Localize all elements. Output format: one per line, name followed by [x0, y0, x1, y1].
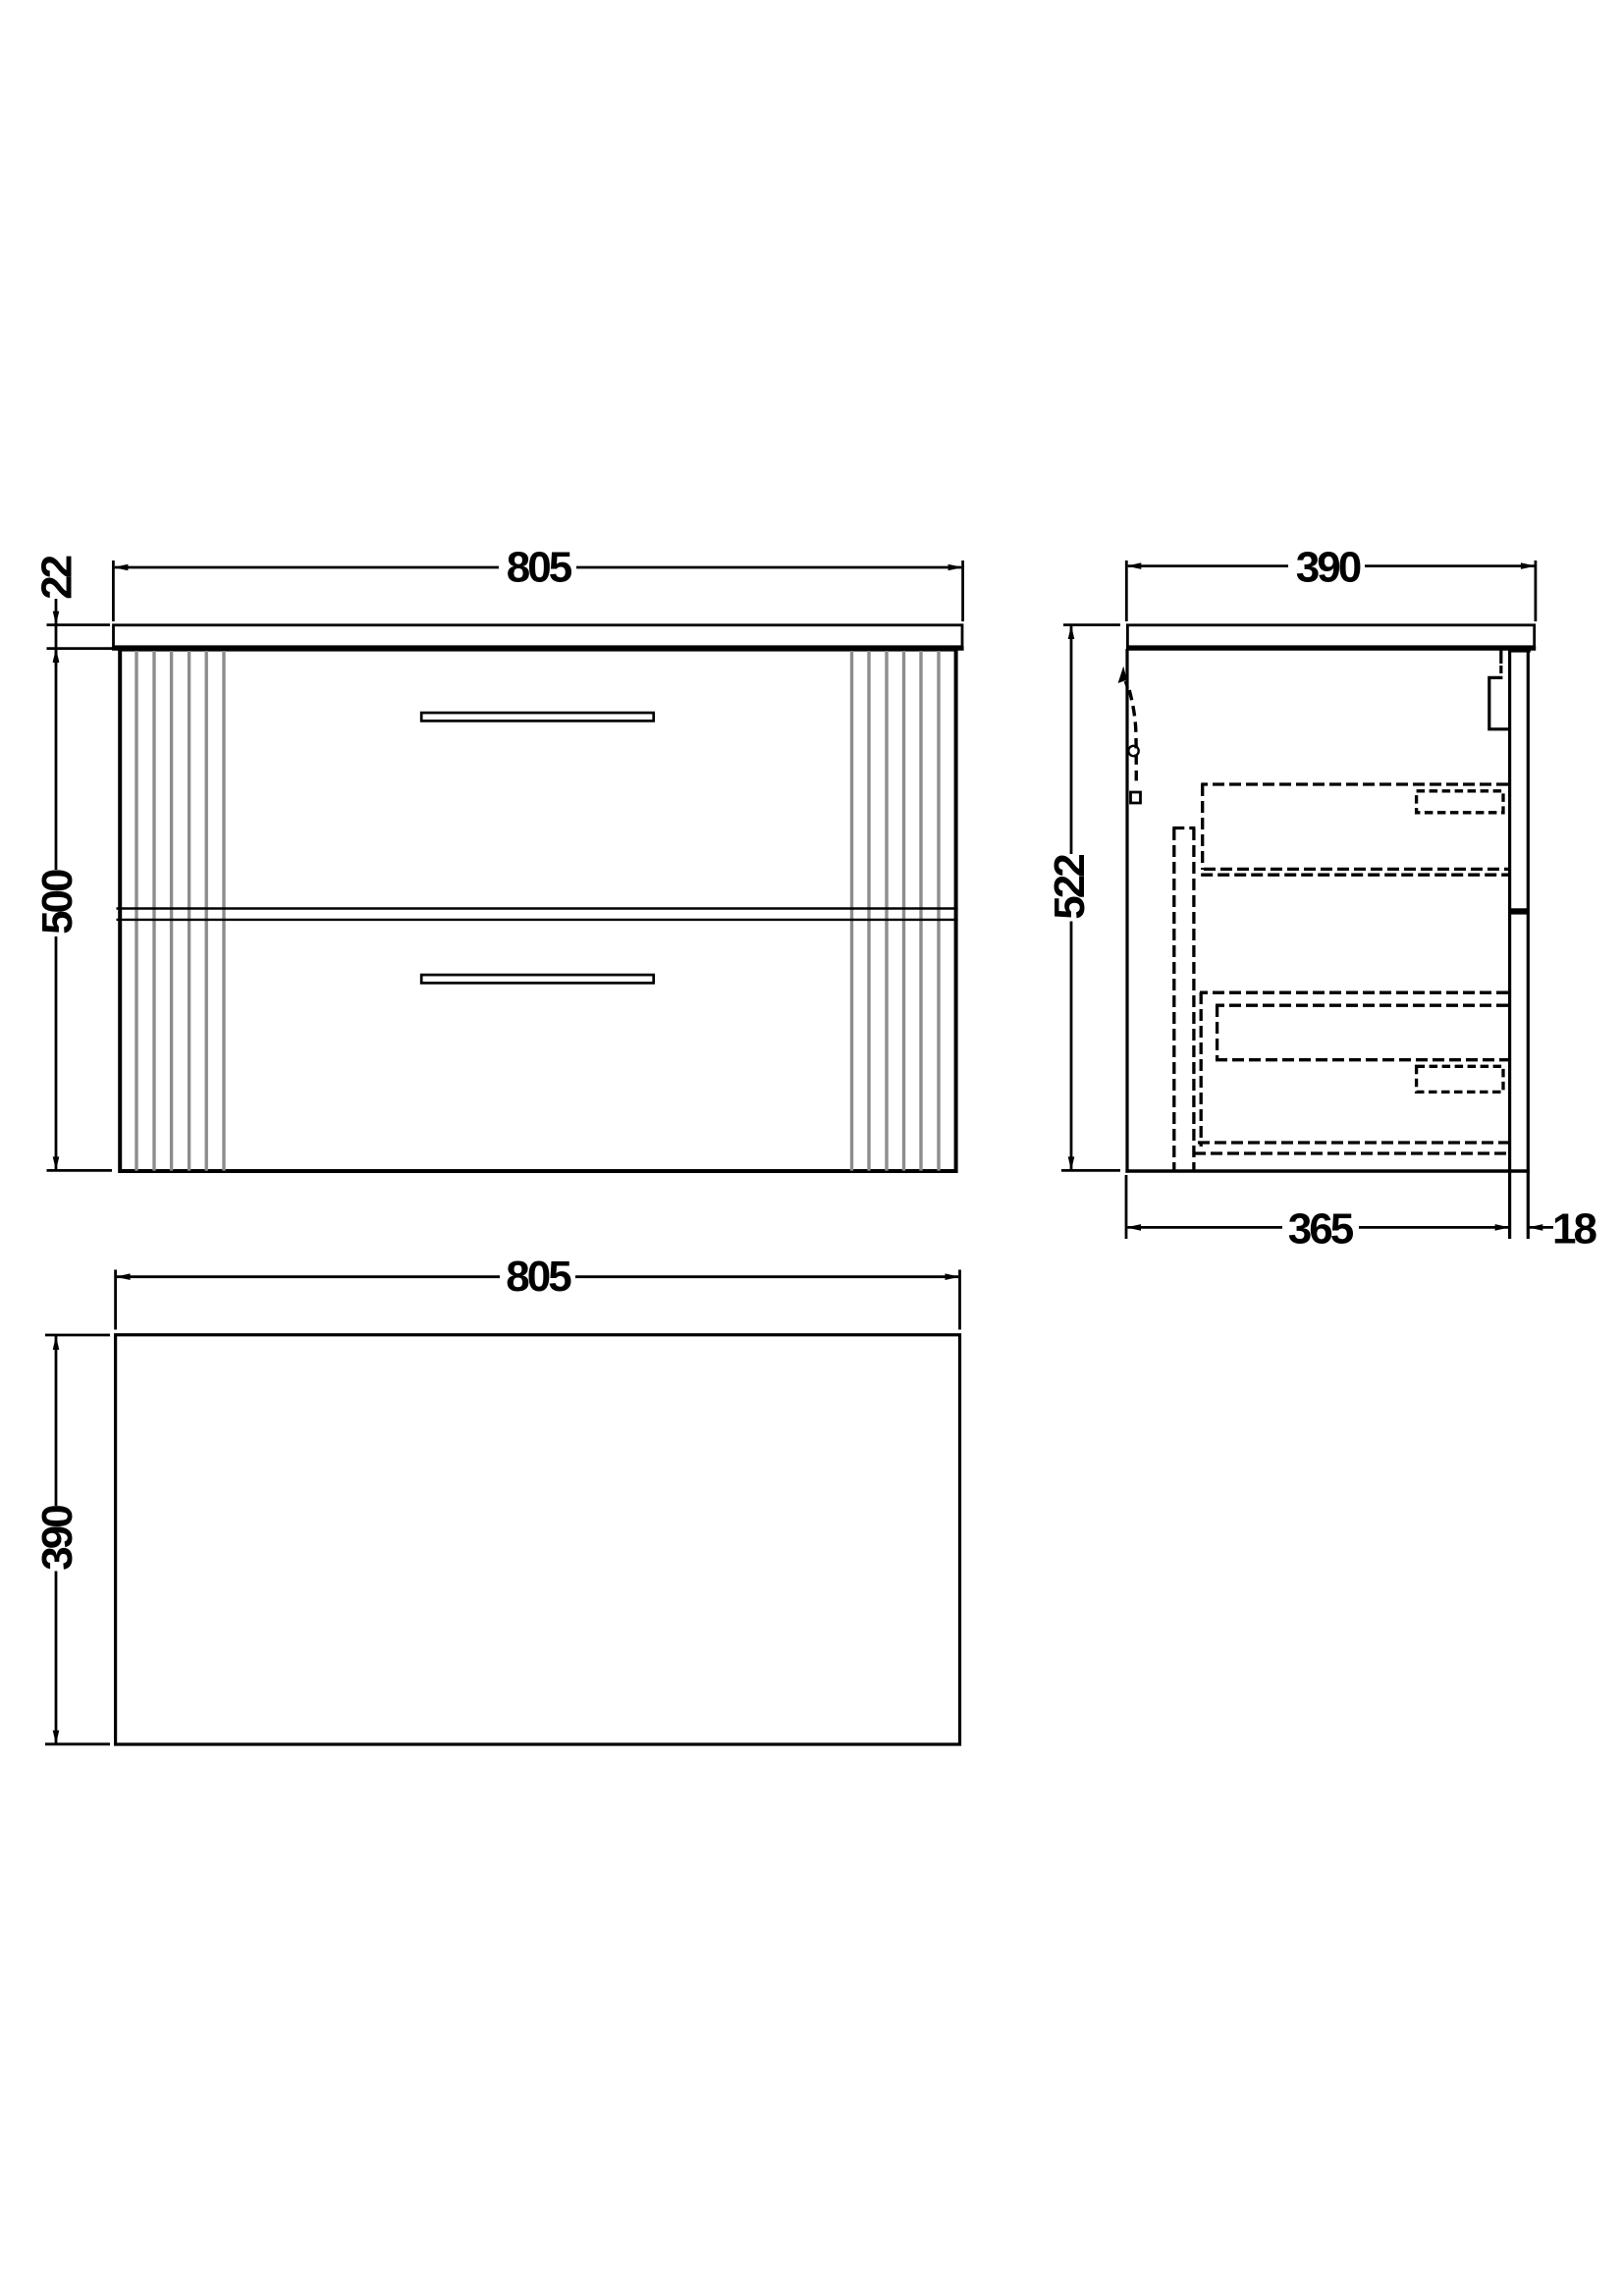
svg-text:390: 390 [33, 1506, 81, 1571]
svg-text:805: 805 [507, 543, 572, 591]
svg-text:365: 365 [1288, 1205, 1354, 1254]
svg-text:18: 18 [1552, 1205, 1596, 1254]
svg-text:522: 522 [1046, 855, 1094, 920]
svg-text:22: 22 [33, 556, 81, 599]
svg-text:500: 500 [33, 870, 81, 934]
svg-text:390: 390 [1296, 543, 1361, 591]
svg-text:805: 805 [506, 1253, 571, 1301]
